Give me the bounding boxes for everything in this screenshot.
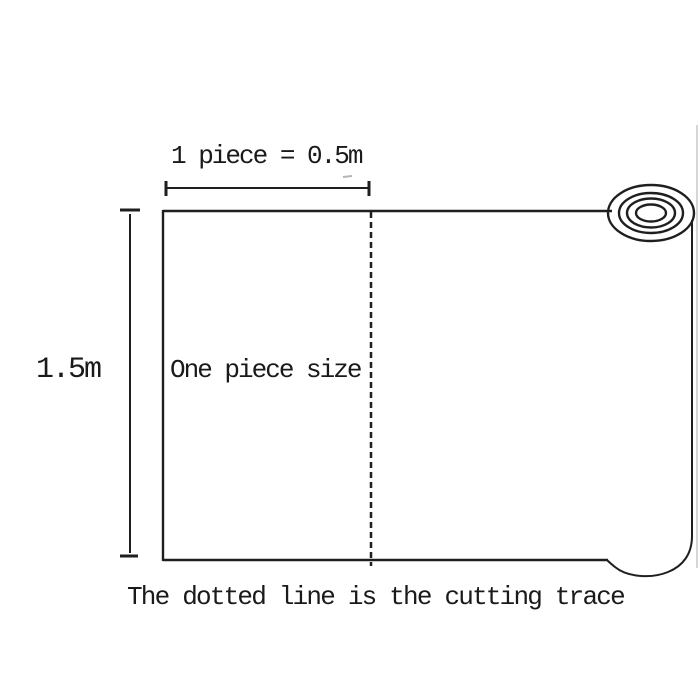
caption-text: The dotted line is the cutting trace: [127, 583, 624, 612]
roll-ring-3: [627, 199, 675, 228]
sheet-outline: [163, 210, 692, 576]
height-dimension-line: [120, 210, 140, 556]
top-dimension-label: 1 piece = 0.5m: [171, 142, 361, 171]
piece-size-label: One piece size: [170, 356, 360, 385]
roll-spiral-icon: [608, 185, 694, 241]
smudge-mark: [343, 176, 352, 177]
roll-cutting-diagram: 1 piece = 0.5m 1.5m One piece size The d…: [0, 0, 700, 700]
width-dimension-line: [166, 181, 369, 196]
roll-core: [636, 205, 666, 222]
left-dimension-label: 1.5m: [36, 354, 100, 387]
sheet-curl-under: [607, 536, 692, 576]
